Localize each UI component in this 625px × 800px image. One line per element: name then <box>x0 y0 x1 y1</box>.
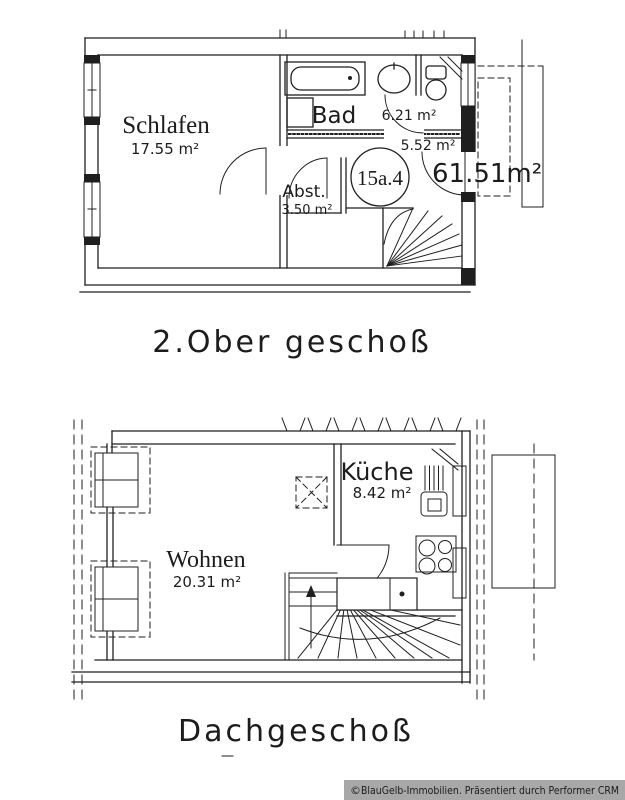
watermark-text: BlauGelb-Immobilien. Präsentiert durch P… <box>361 784 619 797</box>
counter-lower <box>453 548 466 598</box>
stove <box>416 536 456 574</box>
room-area-schlafen: 17.55 m² <box>131 140 199 158</box>
upper-caption: 2.Ober geschoß <box>152 325 432 360</box>
corner-cabinet <box>432 449 458 470</box>
room-label-kueche: Küche <box>341 458 414 486</box>
room-area-wohnen: 20.31 m² <box>173 573 241 591</box>
room-area-kueche: 8.42 m² <box>353 484 412 502</box>
watermark-copyright-icon: © <box>350 784 361 797</box>
lower-right-annex <box>477 420 555 700</box>
lower-caption: Dachgeschoß <box>178 714 414 749</box>
lower-windows <box>91 447 150 637</box>
washbasin <box>378 63 410 93</box>
corner-shelf <box>440 57 462 79</box>
upper-floorplan: Schlafen 17.55 m² Bad 6.21 m² 5.52 m² Ab… <box>80 30 543 360</box>
room-area-diele: 5.52 m² <box>401 138 456 154</box>
floorplan-page: Schlafen 17.55 m² Bad 6.21 m² 5.52 m² Ab… <box>0 0 625 800</box>
door-schlafen <box>220 148 266 194</box>
total-area: 61.51m² <box>432 159 542 189</box>
room-label-bad: Bad <box>312 103 356 129</box>
upper-walls <box>80 38 475 292</box>
skylight-symbol <box>296 477 327 508</box>
room-area-bad: 6.21 m² <box>382 108 437 124</box>
shower-square <box>287 98 313 127</box>
room-label-wohnen: Wohnen <box>166 547 245 573</box>
upper-stairs <box>384 208 462 266</box>
watermark-bar: © BlauGelb-Immobilien. Präsentiert durch… <box>344 780 625 800</box>
room-label-schlafen: Schlafen <box>122 112 210 139</box>
base-cabinet <box>337 578 417 610</box>
heater-lines <box>425 466 443 490</box>
roof-outline-left <box>74 420 82 700</box>
unit-number: 15a.4 <box>357 166 404 190</box>
sink-unit <box>421 492 447 516</box>
bathtub <box>285 62 365 95</box>
upper-tick-marks <box>280 30 444 38</box>
roof-hatch-ticks <box>282 418 461 431</box>
room-label-abstell: Abst. <box>282 182 325 202</box>
room-area-abstell: 3.50 m² <box>282 203 333 218</box>
floorplan-drawing: Schlafen 17.55 m² Bad 6.21 m² 5.52 m² Ab… <box>0 0 625 800</box>
lower-floorplan: Wohnen 20.31 m² Küche 8.42 m² Dachgescho… <box>72 418 555 756</box>
toilet <box>426 66 446 100</box>
counter-upper <box>453 466 466 516</box>
